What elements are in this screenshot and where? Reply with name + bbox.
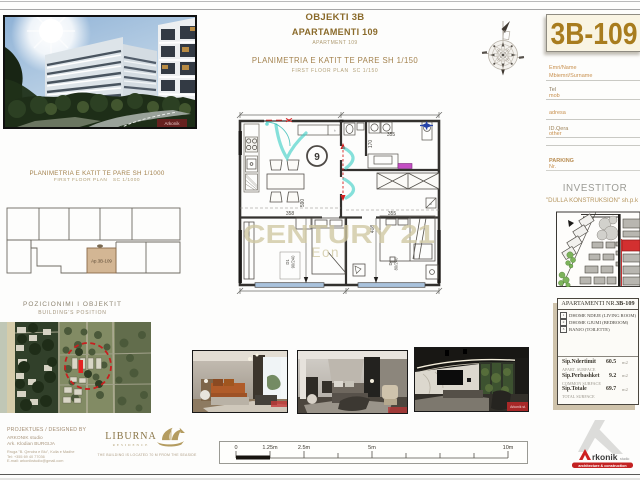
svg-text:Arkonik: Arkonik [164, 121, 180, 126]
svg-text:D: D [388, 262, 393, 265]
svg-text:D1: D1 [285, 259, 290, 265]
svg-text:590: 590 [300, 199, 306, 208]
svg-text:b: b [334, 129, 336, 133]
svg-text:3B-109: 3B-109 [551, 16, 638, 51]
svg-text:2.5m: 2.5m [298, 445, 311, 451]
svg-text:Arkonik st.: Arkonik st. [510, 405, 526, 409]
svg-text:355: 355 [388, 211, 397, 217]
svg-text:9: 9 [314, 152, 320, 163]
svg-text:ac: ac [429, 202, 433, 206]
svg-text:170: 170 [368, 140, 374, 149]
svg-text:studio: studio [620, 457, 629, 461]
svg-text:Eon: Eon [312, 245, 339, 260]
svg-text:358: 358 [286, 211, 295, 217]
svg-text:0: 0 [234, 445, 237, 451]
svg-text:rkonik: rkonik [592, 452, 618, 462]
svg-text:5m: 5m [368, 445, 376, 451]
svg-text:architecture & construction: architecture & construction [578, 464, 627, 468]
svg-text:Ap.3B-109: Ap.3B-109 [91, 259, 112, 264]
svg-text:80/240: 80/240 [394, 257, 399, 270]
svg-text:10m: 10m [503, 445, 514, 451]
svg-text:90/240: 90/240 [291, 255, 296, 268]
svg-text:CENTURY 21: CENTURY 21 [243, 219, 435, 249]
svg-text:355: 355 [387, 132, 396, 138]
svg-text:1.25m: 1.25m [262, 445, 278, 451]
